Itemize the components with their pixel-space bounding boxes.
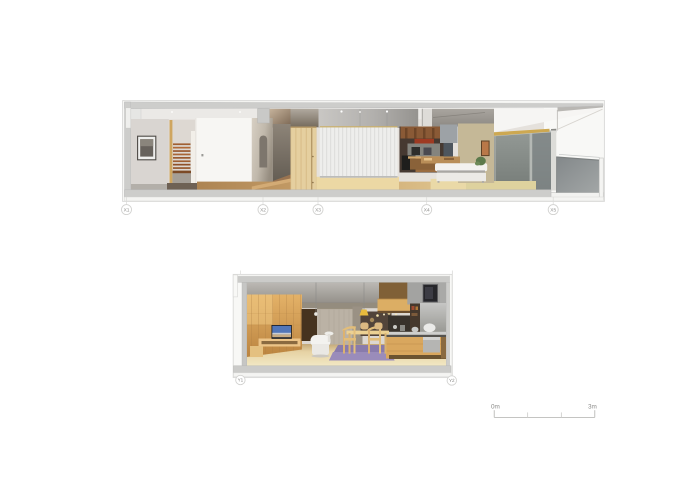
svg-text:X1: X1	[124, 207, 130, 213]
svg-text:X2: X2	[260, 207, 266, 213]
svg-text:X3: X3	[315, 207, 321, 213]
svg-text:X4: X4	[424, 207, 430, 213]
svg-text:Y2: Y2	[449, 378, 455, 383]
svg-text:X5: X5	[550, 207, 556, 213]
svg-text:Y1: Y1	[238, 378, 244, 383]
svg-text:0m: 0m	[491, 404, 500, 411]
svg-text:3m: 3m	[588, 404, 597, 411]
